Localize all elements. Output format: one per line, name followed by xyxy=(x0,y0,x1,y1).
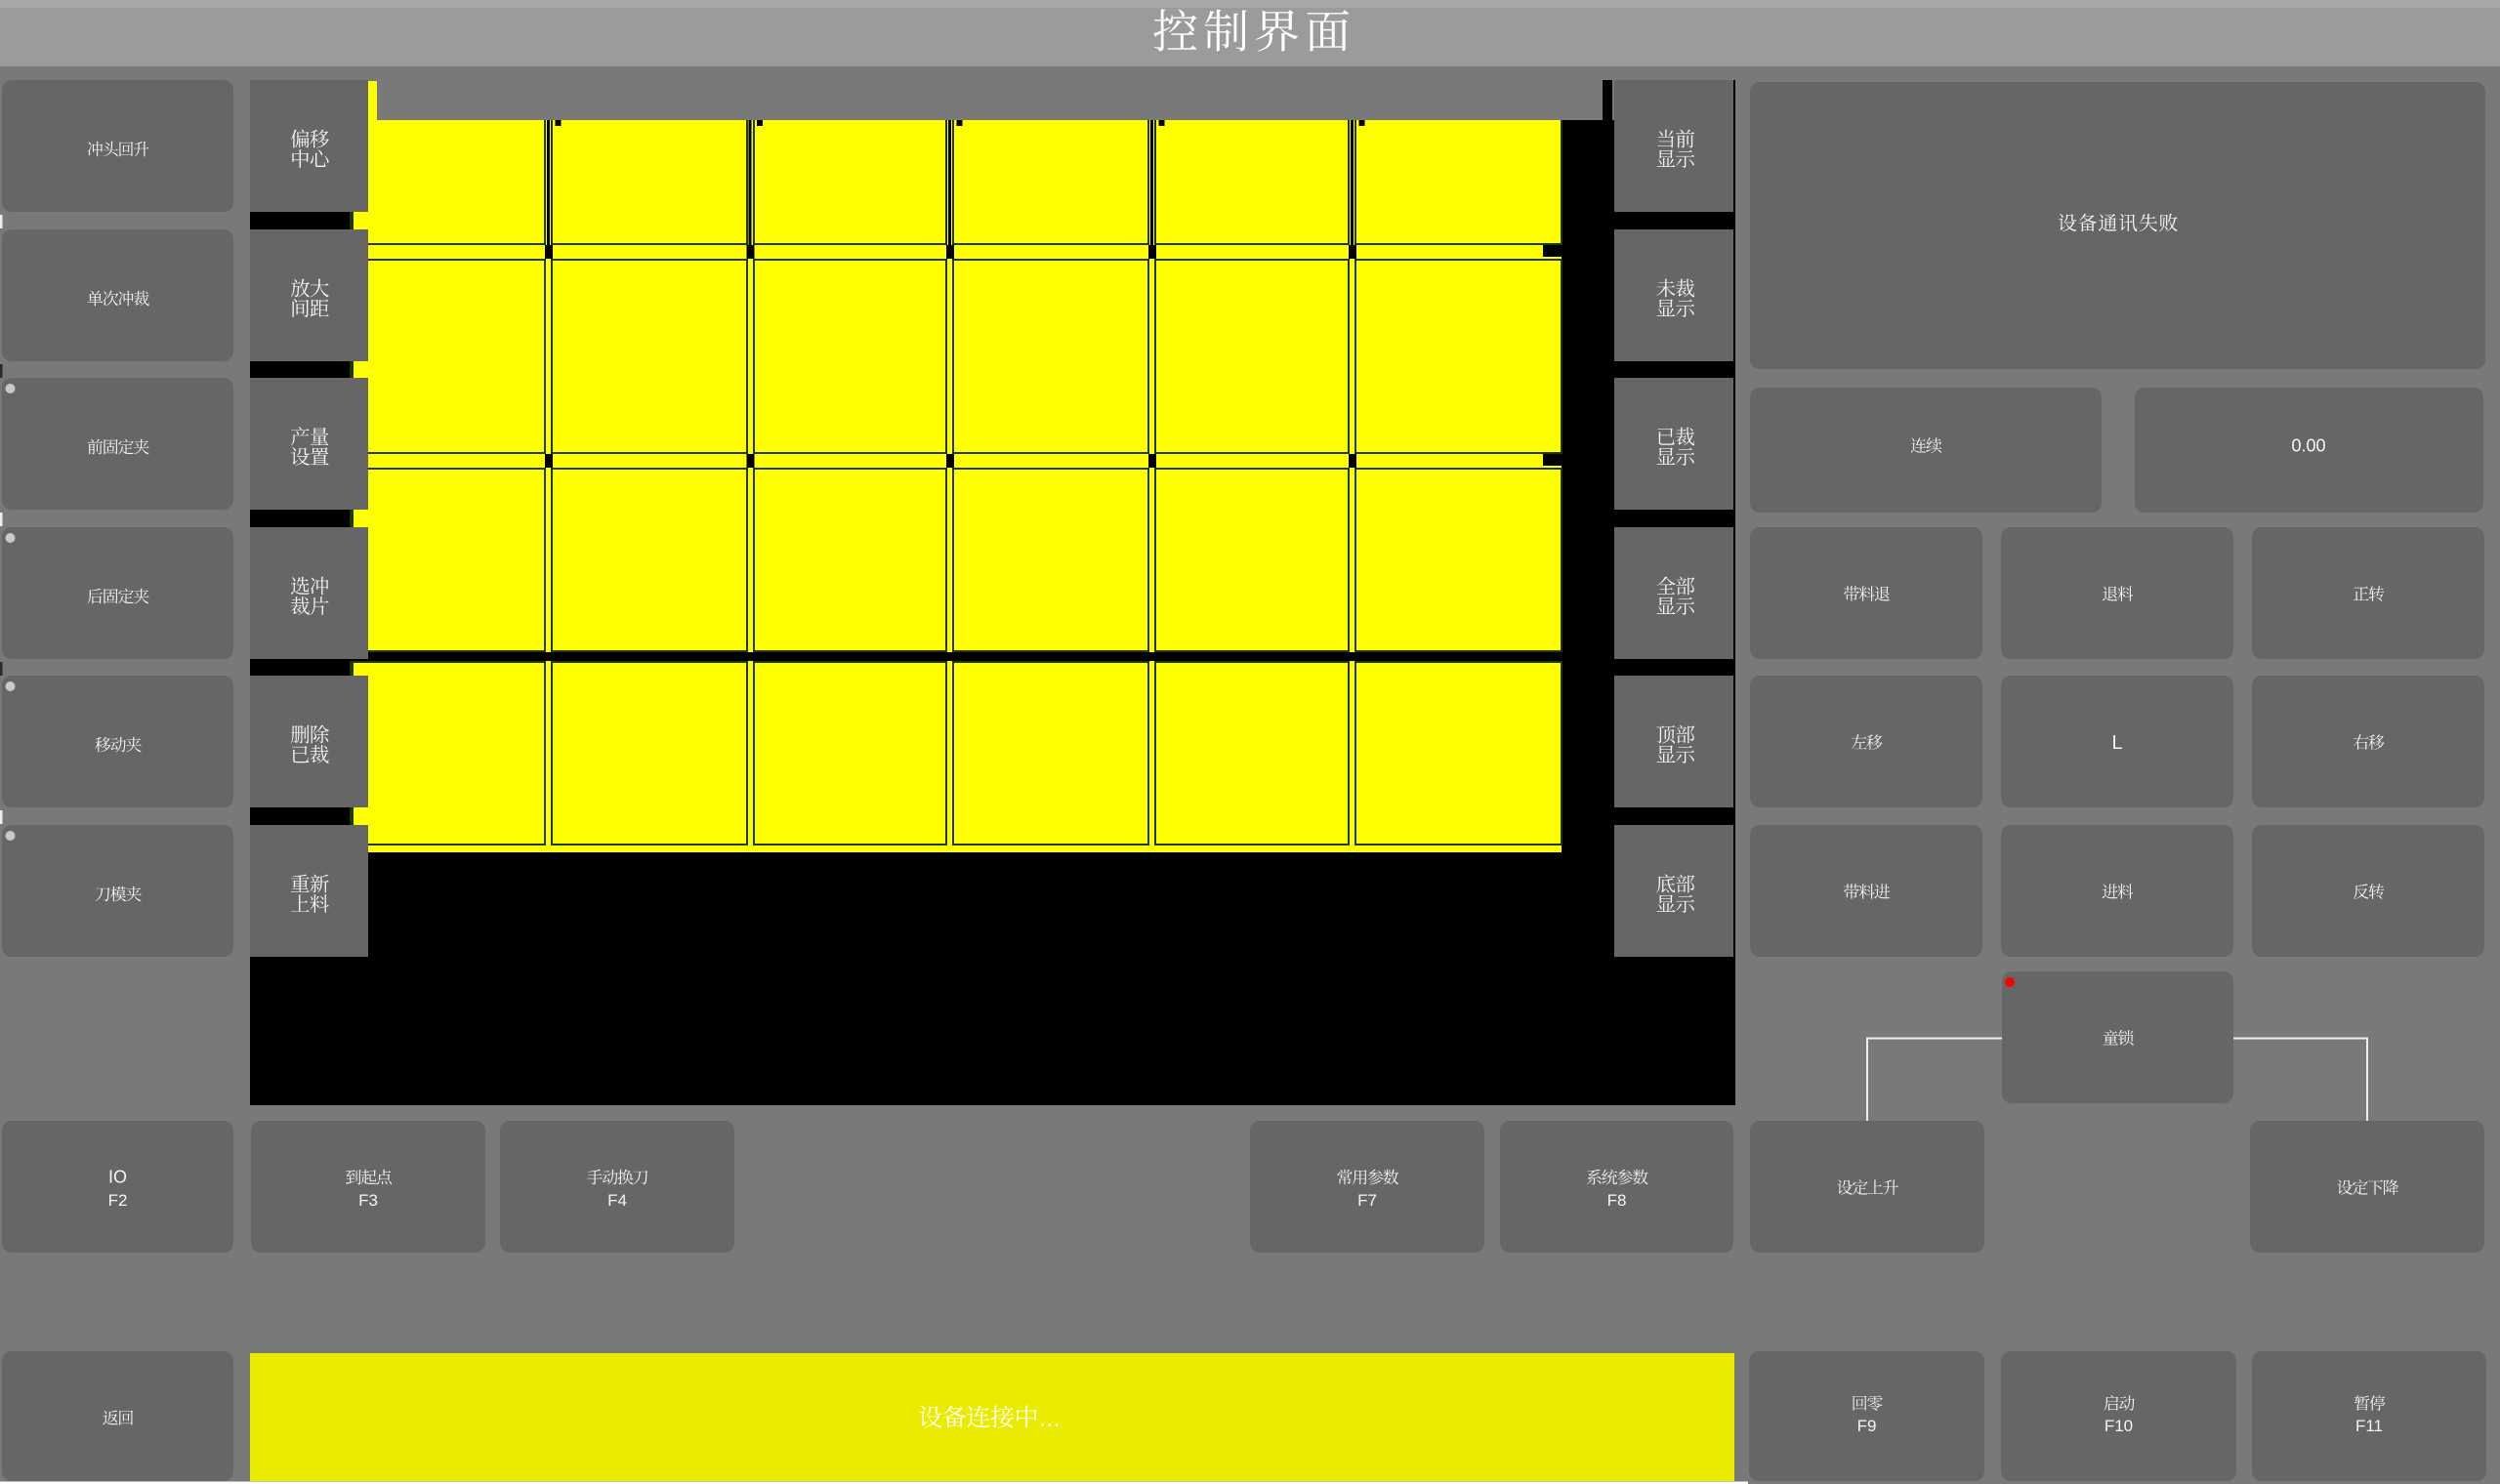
svg-text:F3: F3 xyxy=(358,1191,378,1210)
svg-text:F11: F11 xyxy=(2355,1417,2383,1435)
svg-text:F7: F7 xyxy=(1357,1191,1377,1210)
svg-text:F8: F8 xyxy=(1607,1191,1627,1210)
svg-text:F2: F2 xyxy=(108,1191,128,1210)
svg-text:IO: IO xyxy=(108,1167,127,1186)
svg-text:...: ... xyxy=(1039,1403,1061,1432)
svg-text:0.00: 0.00 xyxy=(2291,435,2325,455)
svg-text:F4: F4 xyxy=(607,1191,627,1210)
svg-text:L: L xyxy=(2111,732,2122,754)
svg-text:F9: F9 xyxy=(1857,1417,1877,1435)
svg-text:F10: F10 xyxy=(2104,1417,2133,1435)
